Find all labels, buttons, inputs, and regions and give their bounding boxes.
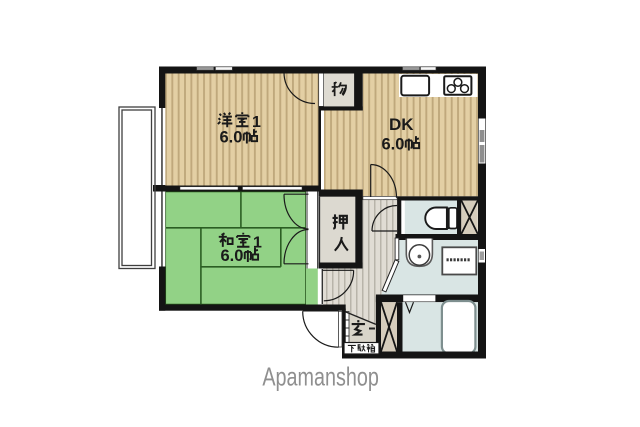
svg-text:6.0: 6.0 [382,136,405,154]
svg-text:DK: DK [389,115,414,134]
svg-text:1: 1 [252,114,261,131]
svg-text:6.0: 6.0 [220,129,243,147]
svg-text:Apamanshop: Apamanshop [262,362,379,392]
svg-text:6.0: 6.0 [221,247,244,265]
